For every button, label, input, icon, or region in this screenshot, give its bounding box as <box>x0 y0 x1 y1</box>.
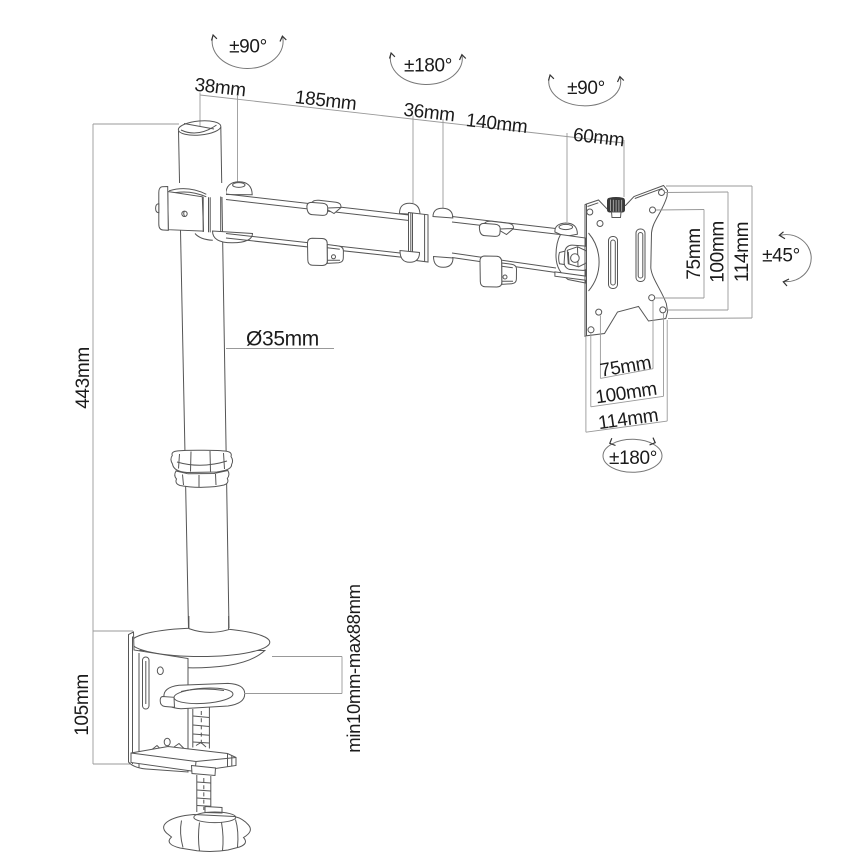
svg-text:±45°: ±45° <box>762 246 800 267</box>
svg-text:±180°: ±180° <box>404 56 452 77</box>
svg-text:100mm: 100mm <box>708 221 729 283</box>
svg-text:105mm: 105mm <box>72 674 93 736</box>
svg-text:Ø35mm: Ø35mm <box>246 328 319 351</box>
svg-text:±90°: ±90° <box>229 37 267 58</box>
svg-text:min10mm-max88mm: min10mm-max88mm <box>343 584 364 752</box>
svg-text:443mm: 443mm <box>73 347 94 409</box>
svg-text:75mm: 75mm <box>684 228 705 279</box>
svg-text:±90°: ±90° <box>567 78 605 99</box>
svg-text:±180°: ±180° <box>609 448 657 469</box>
svg-text:114mm: 114mm <box>732 222 753 282</box>
